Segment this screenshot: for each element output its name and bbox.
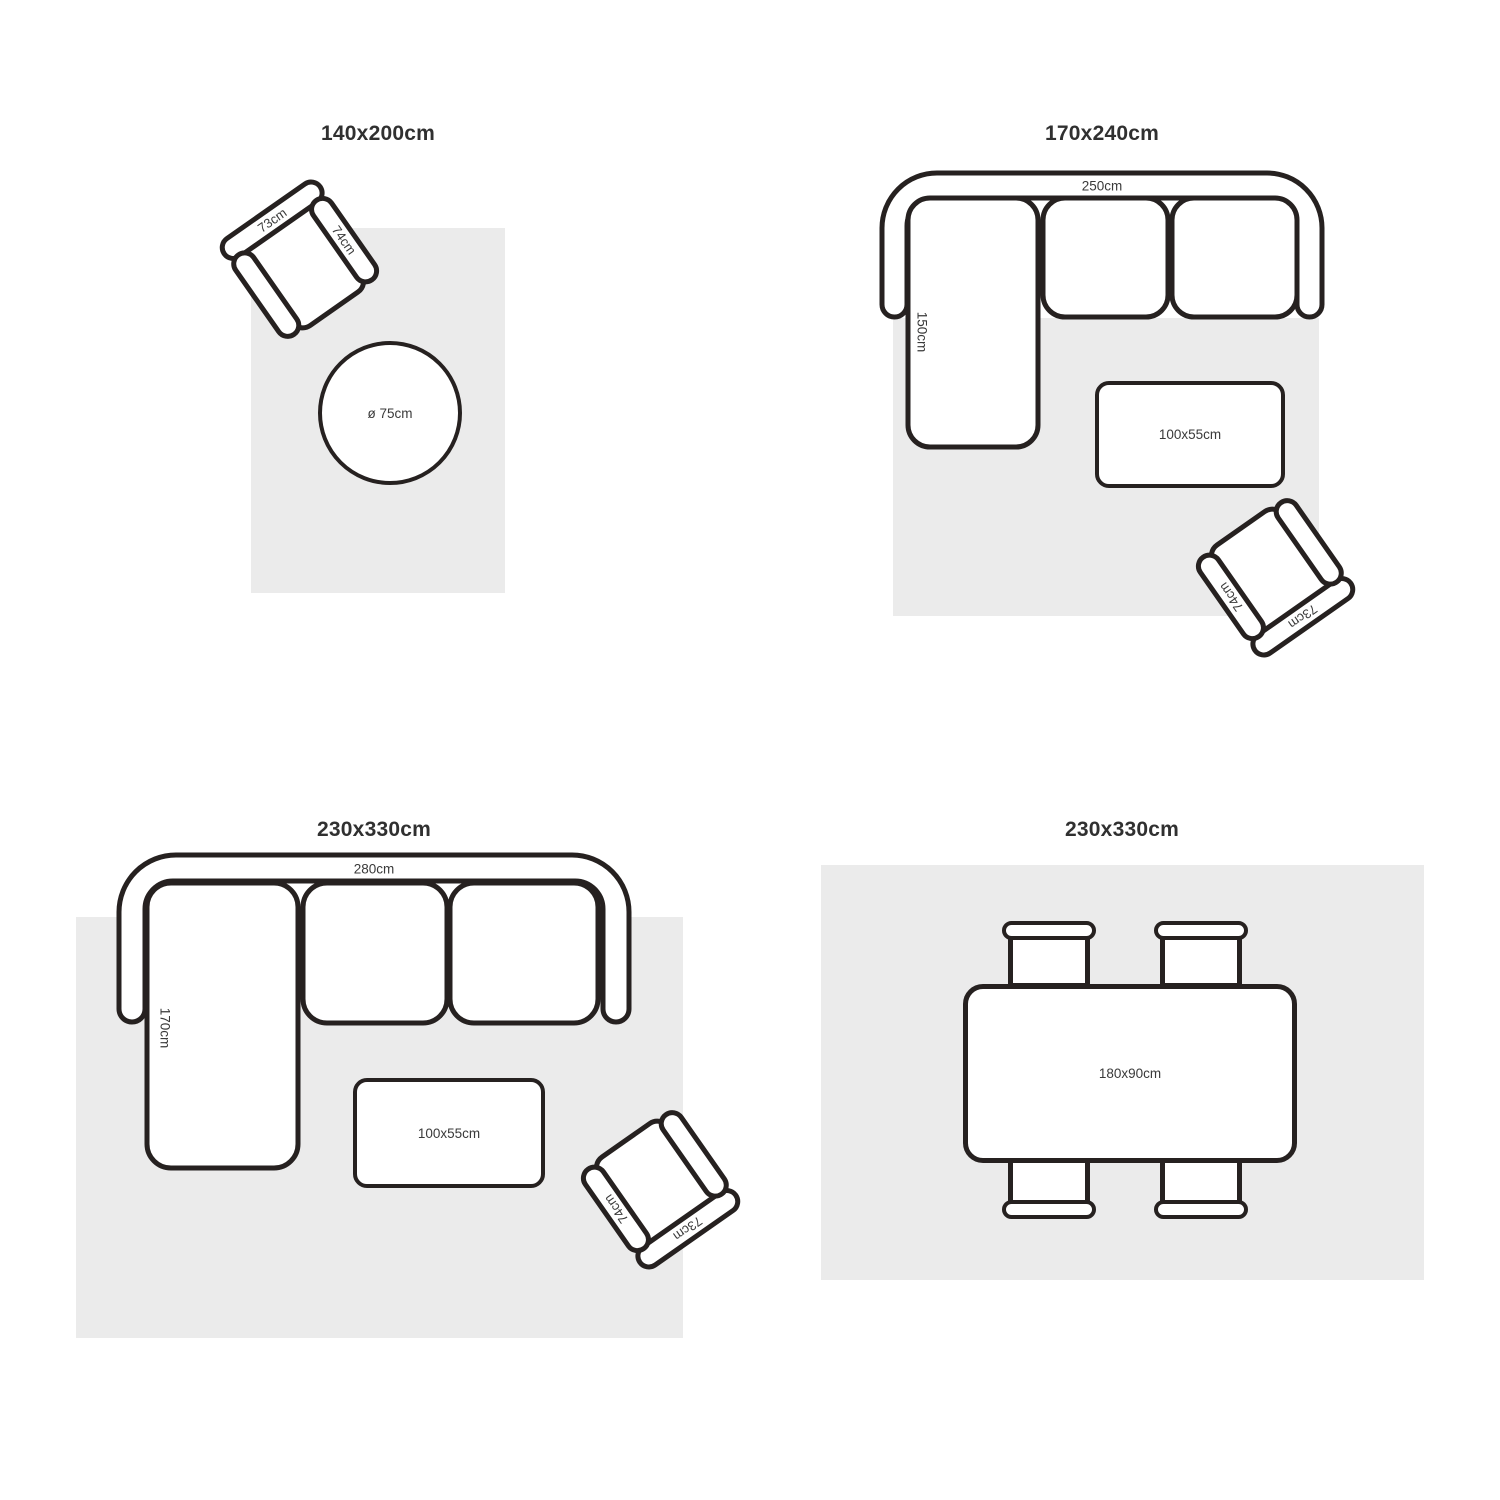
sofa-seat-cushion xyxy=(450,883,598,1023)
dining-chair-backrest xyxy=(1002,1200,1096,1219)
dining-chair-backrest xyxy=(1154,1200,1248,1219)
sofa-chaise-depth-label: 170cm xyxy=(158,1008,173,1049)
rug-size-title-170x240: 170x240cm xyxy=(1045,122,1159,146)
rug-size-title-230x330-dining: 230x330cm xyxy=(1065,818,1179,842)
rug-size-title-230x330-living: 230x330cm xyxy=(317,818,431,842)
dining-table-size-label: 180x90cm xyxy=(1099,1066,1161,1081)
sofa-width-label: 250cm xyxy=(1082,179,1123,194)
sofa-width-label: 280cm xyxy=(354,862,395,877)
coffee-table-size-label: 100x55cm xyxy=(1159,427,1221,442)
dining-table: 180x90cm xyxy=(963,984,1297,1163)
rug-size-title-140x200: 140x200cm xyxy=(321,122,435,146)
sofa-seat-cushion xyxy=(1172,198,1297,317)
sofa-seat-cushion xyxy=(1043,198,1168,317)
rug-size-guide: 140x200cm 73cm 74cm ø 75cm 170x240cm 250… xyxy=(0,0,1500,1500)
round-table-diameter-label: ø 75cm xyxy=(367,406,412,421)
dining-chair-backrest xyxy=(1154,921,1248,940)
coffee-table: 100x55cm xyxy=(353,1078,545,1188)
dining-chair-backrest xyxy=(1002,921,1096,940)
sofa-seat-cushion xyxy=(303,883,447,1023)
coffee-table: 100x55cm xyxy=(1095,381,1285,488)
sofa-chaise-depth-label: 150cm xyxy=(915,312,930,353)
coffee-table-size-label: 100x55cm xyxy=(418,1126,480,1141)
round-side-table: ø 75cm xyxy=(318,341,462,485)
